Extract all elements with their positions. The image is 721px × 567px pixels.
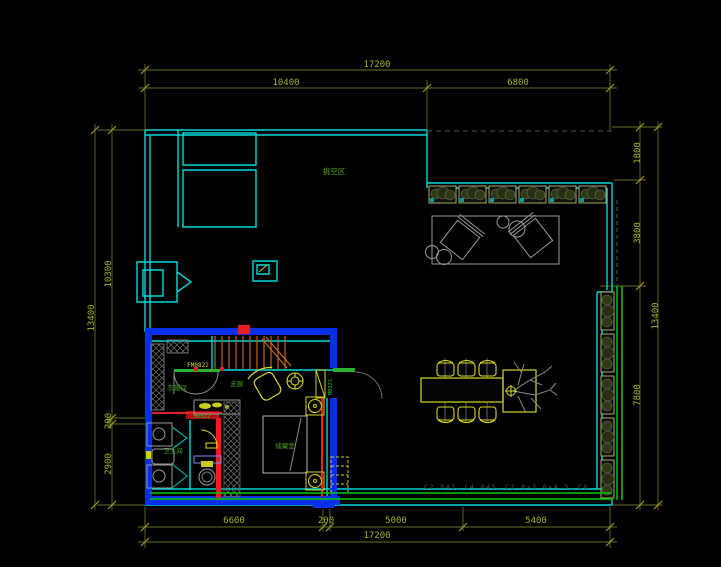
dining-table <box>421 378 503 402</box>
dim-left-seg-3: 2900 <box>104 453 114 475</box>
door-tag-bath: M0822 <box>194 414 211 420</box>
dim-right-seg-2: 3800 <box>633 222 643 244</box>
floor-plan-drawing: 17200 10400 6800 6600 200 5000 5400 1720… <box>0 0 721 567</box>
entry-lintel <box>333 368 355 372</box>
bottom-annotation: C2.043、C4.045、C2.0×3.0×4.5、C6 <box>424 483 589 491</box>
dim-right-seg-1: 1800 <box>633 142 643 164</box>
dim-left-overall: 13400 <box>87 304 97 331</box>
dim-right-seg-3: 7800 <box>633 384 643 406</box>
door-tag-entry: M0921 <box>328 379 334 396</box>
dim-top-overall: 17200 <box>363 60 390 70</box>
dim-right-overall: 13400 <box>651 302 661 329</box>
label-storage: 储藏室 <box>275 441 295 450</box>
dim-top-seg-1: 10400 <box>272 78 299 88</box>
label-corridor: 走廊 <box>231 379 245 388</box>
cabinet-hatch <box>167 340 188 353</box>
wardrobe-hatch <box>151 344 164 410</box>
dim-left-seg-1: 10300 <box>104 260 114 287</box>
dim-top-seg-2: 6800 <box>507 78 529 88</box>
label-bathroom: 卫生间 <box>163 446 183 455</box>
door-jamb-right <box>220 367 224 371</box>
label-cloakroom: 衣帽间 <box>167 383 187 392</box>
dim-bottom-seg-2: 200 <box>318 516 334 526</box>
dim-bottom-overall: 17200 <box>363 531 390 541</box>
stair-landing-block <box>238 325 250 334</box>
label-void-area: 挑空区 <box>323 166 346 176</box>
dim-bottom-seg-4: 5400 <box>525 516 547 526</box>
cad-floor-plan-canvas[interactable]: 17200 10400 6800 6600 200 5000 5400 1720… <box>0 0 721 567</box>
shaft-hatch <box>224 402 240 497</box>
dim-bottom-seg-3: 5000 <box>385 516 407 526</box>
dim-left-seg-2: 200 <box>104 413 114 429</box>
planter-column-right <box>601 292 614 498</box>
dim-bottom-seg-1: 6600 <box>223 516 245 526</box>
door-tag-stair: FM0822 <box>187 362 209 369</box>
